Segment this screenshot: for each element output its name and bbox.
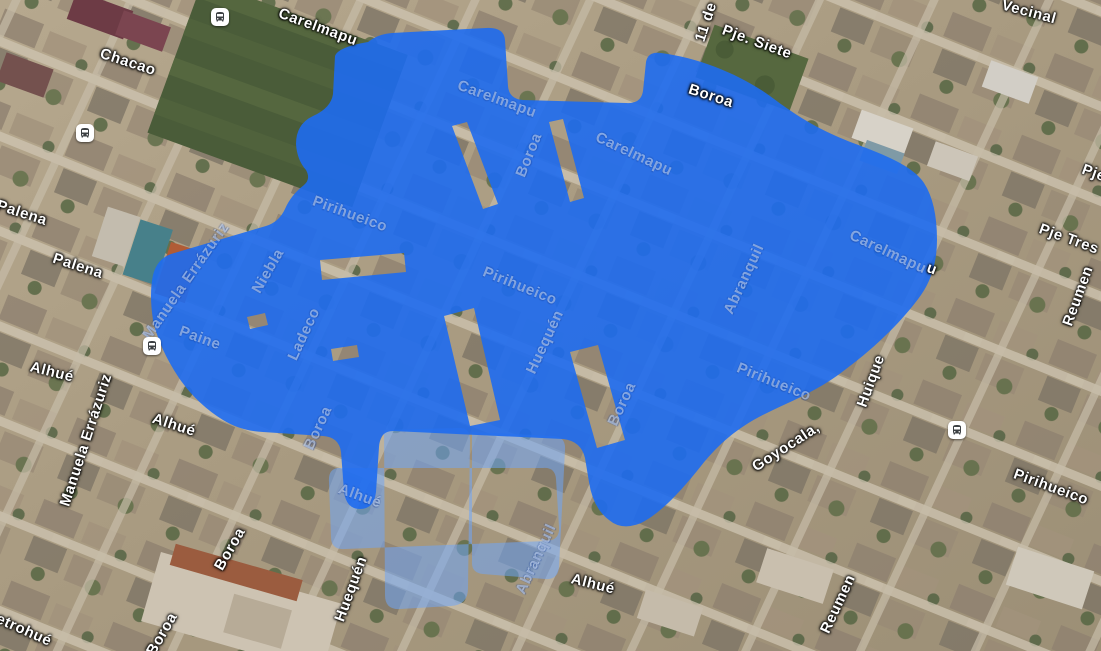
bus-stop-icon[interactable]	[211, 8, 229, 26]
satellite-imagery	[0, 0, 1101, 651]
bus-glyph	[79, 127, 91, 139]
bus-stop-icon[interactable]	[143, 337, 161, 355]
bus-stop-icon[interactable]	[76, 124, 94, 142]
bus-glyph	[146, 340, 158, 352]
bus-glyph	[214, 11, 226, 23]
map-canvas[interactable]: CarelmapuChacaoPalenaPalenaAlhuéManuela …	[0, 0, 1101, 651]
bus-stop-icon[interactable]	[948, 421, 966, 439]
bus-glyph	[951, 424, 963, 436]
